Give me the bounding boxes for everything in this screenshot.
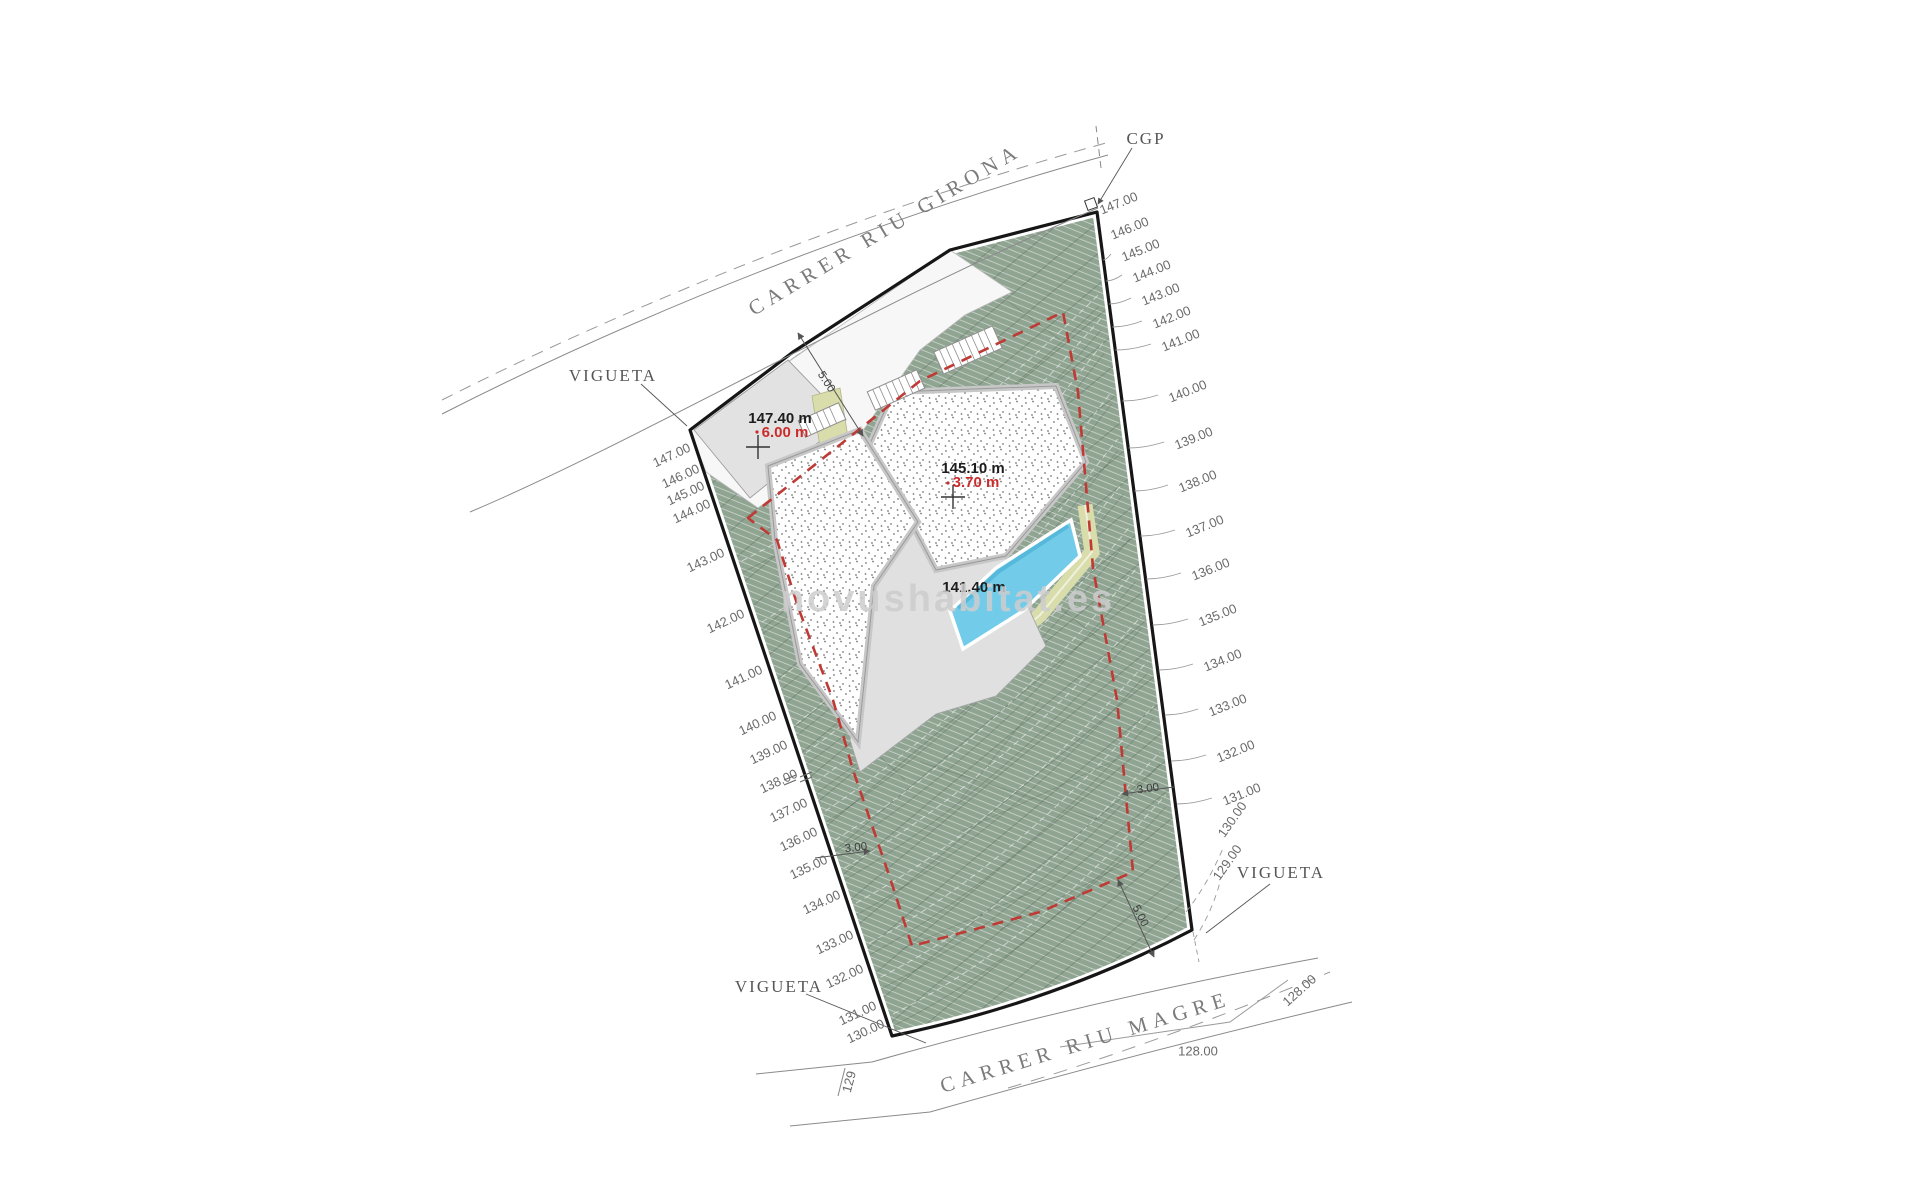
contour-label-left: 143.00 — [684, 545, 726, 575]
contour-label-right: 128.00 — [1178, 1043, 1218, 1058]
point-label: VIGUETA — [1237, 863, 1325, 882]
contour-label-right: 145.00 — [1119, 236, 1161, 265]
contour-leader-right — [1171, 755, 1206, 761]
contour-label-left: 137.00 — [767, 795, 809, 825]
contour-label-left: 129 — [839, 1069, 859, 1094]
contour-label-right: 133.00 — [1206, 691, 1248, 720]
offset-dot-1 — [755, 430, 758, 433]
contour-label-left: 134.00 — [800, 887, 842, 917]
contour-label-right: 139.00 — [1172, 424, 1214, 453]
contour-label-left: 135.00 — [787, 852, 829, 882]
offset-elevation-label: 6.00 m — [762, 424, 809, 441]
contour-leader-right — [1129, 442, 1164, 448]
contour-label-right: 141.00 — [1159, 326, 1201, 355]
offset-dot-2 — [946, 481, 949, 484]
contour-leader-right — [1141, 530, 1175, 536]
point-label: VIGUETA — [735, 977, 823, 996]
contour-leader-right — [1153, 619, 1188, 625]
cgp-axis-tick — [1096, 126, 1101, 168]
site-plan-canvas: CARRER RIU GIRONACARRER RIU MAGRECGPVIGU… — [0, 0, 1920, 1200]
contour-leader-right — [1115, 344, 1151, 350]
contour-leader-right — [1177, 798, 1212, 804]
contour-label-left: 140.00 — [736, 708, 778, 738]
point-label: VIGUETA — [569, 366, 657, 385]
contour-leader-right — [1146, 573, 1181, 579]
contour-label-right: 146.00 — [1108, 214, 1150, 243]
contour-label-right: 138.00 — [1176, 467, 1218, 496]
contour-leader-right — [1135, 485, 1168, 491]
point-label: CGP — [1126, 129, 1165, 148]
contour-label-left: 133.00 — [813, 927, 855, 957]
contour-label-right: 135.00 — [1196, 601, 1238, 630]
contour-leader-right — [1159, 664, 1193, 670]
vigueta-leader-right — [1206, 884, 1270, 933]
contour-label-left: 139.00 — [747, 737, 789, 767]
contour-leader-right — [1112, 321, 1142, 327]
cgp-box — [1085, 198, 1098, 211]
watermark-text: novushabitat.es — [781, 578, 1115, 620]
contour-leader-right — [1165, 709, 1198, 715]
contour-label-right: 140.00 — [1166, 377, 1208, 406]
contour-label-right: 142.00 — [1150, 303, 1192, 332]
contour-label-left: 132.00 — [823, 961, 865, 991]
contour-label-left: 136.00 — [777, 824, 819, 854]
contour-label-right: 130.00 — [1215, 799, 1250, 840]
contour-label-left: 142.00 — [704, 606, 746, 636]
contour-label-left: 138.00 — [757, 766, 799, 796]
contour-129-leader — [1194, 882, 1220, 940]
offset-elevation-label: 3.70 m — [953, 474, 1000, 491]
contour-label-right: 144.00 — [1130, 257, 1172, 286]
contour-label-right: 136.00 — [1189, 555, 1231, 584]
contour-label-right: 147.00 — [1097, 189, 1139, 218]
dimension-label: 3.00 — [844, 841, 868, 855]
contour-label-right: 143.00 — [1139, 280, 1181, 309]
contour-leader-right — [1109, 298, 1131, 304]
contour-label-right: 132.00 — [1214, 737, 1256, 766]
contour-leader-right — [1106, 275, 1122, 281]
contour-label-right: 137.00 — [1183, 512, 1225, 541]
contour-label-right: 134.00 — [1201, 646, 1243, 675]
site-plan-drawing: CARRER RIU GIRONACARRER RIU MAGRECGPVIGU… — [0, 0, 1920, 1200]
contour-label-left: 141.00 — [722, 662, 764, 692]
contour-leader-right — [1122, 395, 1158, 401]
